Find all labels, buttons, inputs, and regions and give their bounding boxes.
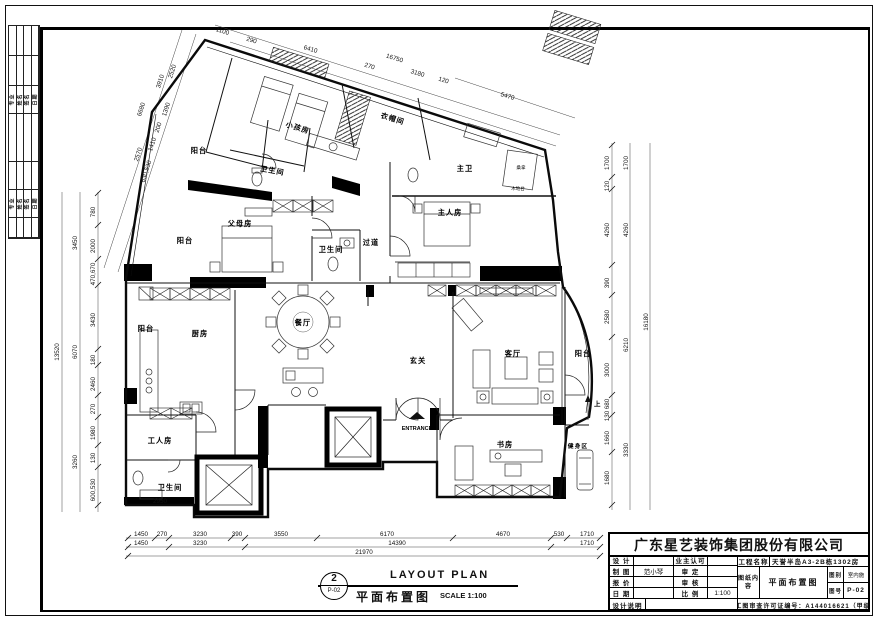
tb-value xyxy=(634,588,674,599)
room-label: 过道 xyxy=(363,238,379,247)
dim: 1660 xyxy=(604,431,611,446)
stamp-number: 2 xyxy=(321,573,347,586)
tb-label: 图号 xyxy=(828,583,844,599)
dim: 530 xyxy=(554,531,565,538)
tb-value: 室内施 xyxy=(844,567,868,583)
stamp-underline xyxy=(318,585,518,587)
dim: 130 xyxy=(604,410,611,421)
up-label: 上 xyxy=(594,399,602,408)
tb-label: 图别 xyxy=(828,567,844,583)
dim: 1700 xyxy=(604,156,611,171)
tb-label: 日 期 xyxy=(610,588,634,599)
dim: 390 xyxy=(604,277,611,288)
dim: 3910 xyxy=(155,73,166,89)
room-label: 父母房 xyxy=(227,219,253,228)
drawing-stamp: 2 P-02 LAYOUT PLAN 平面布置图 SCALE 1:100 xyxy=(318,563,518,607)
dim: 390 xyxy=(232,531,243,538)
structural-walls xyxy=(124,176,566,505)
dim: 2570 xyxy=(133,146,144,162)
room-label: 小孩房 xyxy=(284,119,311,135)
room-label: 书房 xyxy=(497,440,513,449)
tb-label: 设计说明 xyxy=(610,599,646,611)
tb-label: 业主认可 xyxy=(674,555,708,566)
dim: 6070 xyxy=(72,345,79,360)
tb-value xyxy=(708,577,738,588)
dim: 120 xyxy=(604,180,611,191)
stamp-title-en: LAYOUT PLAN xyxy=(390,569,489,581)
room-label: 木地台 xyxy=(511,185,525,192)
tb-label: 审 核 xyxy=(674,577,708,588)
dim: 780 xyxy=(90,206,97,217)
dim: 2950 xyxy=(153,498,168,505)
dim: 1390 xyxy=(161,101,172,117)
elevator-shafts xyxy=(197,409,379,513)
room-label: 卫生间 xyxy=(260,164,286,177)
dim: 3180 xyxy=(410,68,426,79)
dim: 270 xyxy=(363,62,376,72)
room-label: 餐厅 xyxy=(294,318,311,327)
room-label: 衣帽间 xyxy=(380,111,406,127)
room-label: 客厅 xyxy=(504,349,521,358)
room-label: 健身区 xyxy=(568,442,588,450)
company-name: 广东星艺装饰集团股份有限公司 xyxy=(610,534,868,557)
dim: 5470 xyxy=(500,91,516,102)
dim: 270 xyxy=(157,531,168,538)
tb-label: 审 定 xyxy=(674,566,708,577)
dim: 1450 xyxy=(134,531,149,538)
dim: 1980 xyxy=(90,426,97,441)
tb-value xyxy=(708,566,738,577)
dim: 4260 xyxy=(604,223,611,238)
dim: 2580 xyxy=(604,310,611,325)
tb-label: 图纸内容 xyxy=(738,567,760,599)
room-label: 阳台 xyxy=(575,349,591,358)
tb-label: 设 计 xyxy=(610,555,634,566)
dim: 120 xyxy=(437,76,450,86)
dim: 3430 xyxy=(90,313,97,328)
dim: 270 xyxy=(90,403,97,414)
dim: 2460 xyxy=(90,377,97,392)
title-block: 广东星艺装饰集团股份有限公司 设 计 业主认可 制 图 范小琴 审 定 报 价 … xyxy=(608,532,870,611)
dim: 1680 xyxy=(604,471,611,486)
tb-value: 1:100 xyxy=(708,588,738,599)
room-label: 工人房 xyxy=(148,436,173,445)
dim: 6210 xyxy=(623,338,630,353)
dim: 1700 xyxy=(623,156,630,171)
dim: 470,670 xyxy=(90,262,97,285)
tb-value xyxy=(708,555,738,566)
dim: 130 xyxy=(90,452,97,463)
tb-label: 工程名称 xyxy=(738,555,770,567)
dim: 3260 xyxy=(72,455,79,470)
sheet-number: P-02 xyxy=(844,583,868,599)
room-label: 阳台 xyxy=(138,324,154,333)
room-labels: 小孩房 阳台 卫生间 衣帽间 主卫 桑拿 木地台 主人房 父母房 过道 卫生间 … xyxy=(138,111,602,492)
detail-reference-icon: 2 P-02 xyxy=(320,572,348,600)
stamp-title-cn: 平面布置图 xyxy=(356,588,431,605)
permit-number: 施工图审查许可证编号：A144016621（甲级） xyxy=(738,599,868,611)
room-label: 桑拿 xyxy=(516,164,526,171)
window-strips xyxy=(150,10,601,496)
dim: 2000 xyxy=(90,239,97,254)
dim: 6680 xyxy=(136,101,147,117)
stamp-scale: SCALE 1:100 xyxy=(440,591,487,600)
floor-plan: 小孩房 阳台 卫生间 衣帽间 主卫 桑拿 木地台 主人房 父母房 过道 卫生间 … xyxy=(0,0,878,620)
dim: 6170 xyxy=(380,531,395,538)
dim: 600,530 xyxy=(90,478,97,501)
dim: 3550 xyxy=(274,531,289,538)
dim: 1100 xyxy=(215,26,230,37)
tb-label: 制 图 xyxy=(610,566,634,577)
dim: 680 xyxy=(604,398,611,409)
tb-value xyxy=(634,555,674,566)
tb-value xyxy=(634,577,674,588)
dim: 4670 xyxy=(496,531,511,538)
dim: 200 xyxy=(154,121,164,134)
dim: 3450 xyxy=(72,236,79,251)
dim: 13520 xyxy=(54,343,61,361)
dim: 21970 xyxy=(355,549,373,556)
dim: 6410 xyxy=(303,44,319,55)
drawing-sheet: 专业 姓名 签名 日期 专业 姓名 签名 日期 xyxy=(0,0,878,620)
dim: 1450 xyxy=(134,540,149,547)
project-name: 天誉半岛A3-2B栋1302房 xyxy=(770,555,868,567)
room-label: 阳台 xyxy=(177,236,193,245)
dim: 180 xyxy=(90,354,97,365)
room-label: 卫生间 xyxy=(319,245,344,254)
dim: 1710 xyxy=(580,531,595,538)
entrance-label: ENTRANCE xyxy=(402,426,433,432)
tb-label: 报 价 xyxy=(610,577,634,588)
room-label: 主人房 xyxy=(438,208,463,217)
dim: 3330 xyxy=(623,443,630,458)
dim: 16750 xyxy=(385,53,404,65)
stamp-ref: P-02 xyxy=(321,586,347,597)
dim: 16180 xyxy=(643,313,650,331)
dim: 3000 xyxy=(604,363,611,378)
room-label: 厨房 xyxy=(192,329,208,338)
tb-label: 比 例 xyxy=(674,588,708,599)
room-label: 阳台 xyxy=(191,146,207,155)
room-label: 主卫 xyxy=(457,164,473,173)
tb-value: 范小琴 xyxy=(634,566,674,577)
dim: 290 xyxy=(245,36,258,46)
dim: 3230 xyxy=(193,531,208,538)
dim: 3230 xyxy=(193,540,208,547)
dim: 14390 xyxy=(388,540,406,547)
dim: 4260 xyxy=(623,223,630,238)
dim: 1710 xyxy=(580,540,595,547)
room-label: 卫生间 xyxy=(158,483,183,492)
tb-value xyxy=(646,599,738,611)
drawing-title: 平面布置图 xyxy=(760,567,828,599)
entrance-arrow-icon xyxy=(409,412,425,419)
room-label: 玄关 xyxy=(410,356,426,365)
